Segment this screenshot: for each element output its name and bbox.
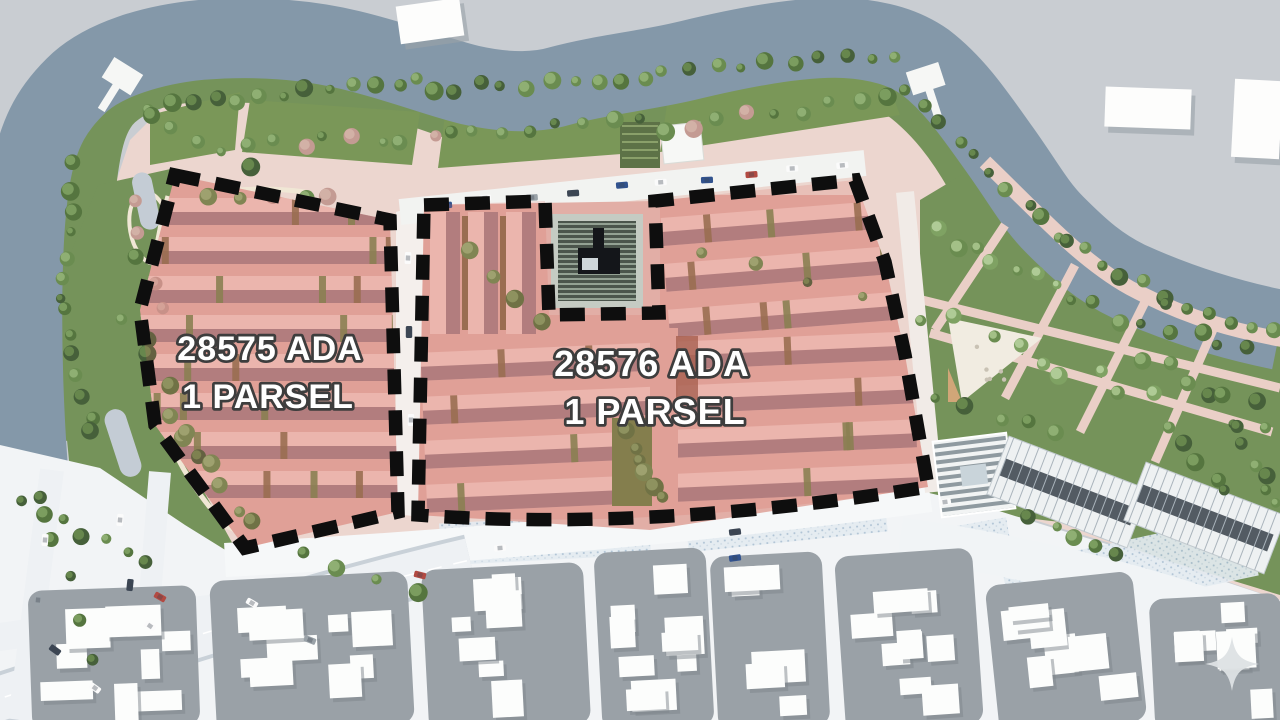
tree bbox=[969, 149, 979, 159]
tree bbox=[984, 168, 994, 178]
city-building bbox=[779, 695, 807, 716]
tree bbox=[811, 50, 824, 63]
tree bbox=[592, 74, 608, 90]
tree bbox=[217, 147, 226, 156]
city-building bbox=[114, 683, 139, 720]
tree bbox=[1047, 424, 1064, 441]
tree bbox=[65, 571, 75, 581]
tree bbox=[989, 330, 1001, 342]
city-building bbox=[491, 679, 524, 717]
tree bbox=[494, 81, 504, 91]
tree bbox=[956, 397, 974, 415]
svg-text:28575 ADA: 28575 ADA bbox=[177, 330, 362, 368]
city-building bbox=[65, 608, 111, 649]
tree bbox=[889, 52, 900, 63]
tree bbox=[371, 574, 381, 584]
tree bbox=[1053, 522, 1062, 531]
svg-text:1 PARSEL: 1 PARSEL bbox=[564, 391, 745, 432]
tree bbox=[1096, 365, 1108, 377]
tree bbox=[1134, 352, 1152, 370]
city-building bbox=[451, 617, 471, 633]
tree bbox=[56, 272, 69, 285]
tree bbox=[854, 92, 872, 110]
car bbox=[116, 514, 123, 527]
car bbox=[567, 190, 579, 197]
tree bbox=[682, 62, 696, 76]
tree bbox=[124, 547, 134, 557]
tree bbox=[394, 79, 407, 92]
tree bbox=[1219, 485, 1230, 496]
tree bbox=[446, 84, 462, 100]
tree bbox=[1037, 357, 1050, 370]
car bbox=[701, 177, 713, 184]
tree bbox=[950, 239, 968, 257]
tree bbox=[59, 514, 69, 524]
tree bbox=[788, 56, 804, 72]
tree bbox=[131, 226, 145, 240]
car bbox=[745, 171, 757, 178]
tree bbox=[411, 72, 423, 84]
tree bbox=[918, 99, 931, 112]
tree bbox=[577, 117, 589, 129]
tree bbox=[73, 614, 86, 627]
city-block bbox=[1149, 593, 1280, 720]
city-building bbox=[40, 680, 93, 701]
tree bbox=[823, 96, 835, 108]
tree bbox=[1240, 340, 1255, 355]
tree bbox=[1014, 338, 1029, 353]
tree bbox=[796, 107, 811, 122]
city-building bbox=[1250, 689, 1273, 719]
tree bbox=[1065, 529, 1082, 546]
tree bbox=[1097, 261, 1107, 271]
tree bbox=[1032, 208, 1049, 225]
tree bbox=[1212, 340, 1223, 351]
city-building bbox=[724, 565, 781, 593]
tree bbox=[1052, 280, 1061, 289]
tree bbox=[241, 157, 260, 176]
car bbox=[654, 179, 666, 186]
tree bbox=[655, 65, 666, 76]
tree bbox=[996, 414, 1009, 427]
city-building bbox=[1099, 672, 1139, 701]
tree bbox=[1181, 303, 1193, 315]
tree bbox=[1050, 367, 1068, 385]
city-block bbox=[421, 562, 591, 720]
car bbox=[126, 579, 134, 592]
city-building bbox=[921, 683, 960, 715]
tree bbox=[66, 227, 75, 236]
tree bbox=[997, 182, 1012, 197]
city-building bbox=[248, 608, 304, 640]
city-building bbox=[328, 614, 349, 632]
tree bbox=[685, 120, 703, 138]
tree bbox=[769, 109, 779, 119]
tree bbox=[868, 54, 878, 64]
svg-text:1 PARSEL: 1 PARSEL bbox=[182, 378, 354, 416]
city-block bbox=[209, 571, 415, 720]
tree bbox=[1235, 437, 1248, 450]
tree bbox=[1247, 322, 1258, 333]
tree bbox=[299, 139, 315, 155]
tree bbox=[1231, 420, 1244, 433]
tree bbox=[712, 58, 726, 72]
car bbox=[34, 594, 41, 607]
tree bbox=[409, 583, 428, 602]
tree bbox=[163, 93, 182, 112]
tree bbox=[229, 94, 245, 110]
dark-roof-building bbox=[551, 214, 643, 308]
tree bbox=[1111, 386, 1125, 400]
tree bbox=[445, 126, 458, 139]
tree bbox=[298, 547, 310, 559]
tree bbox=[1110, 268, 1128, 286]
city-block bbox=[710, 551, 831, 720]
tree bbox=[143, 107, 160, 124]
tree bbox=[1060, 234, 1074, 248]
tree bbox=[613, 73, 629, 89]
tree bbox=[1160, 298, 1172, 310]
tree bbox=[496, 127, 508, 139]
tree bbox=[1180, 375, 1196, 391]
tree bbox=[638, 72, 653, 87]
tree bbox=[343, 128, 359, 144]
car bbox=[616, 181, 629, 188]
tree bbox=[164, 121, 178, 135]
car bbox=[405, 252, 412, 264]
tree bbox=[56, 294, 65, 303]
tree bbox=[1020, 509, 1036, 525]
tree bbox=[139, 555, 153, 569]
tree bbox=[295, 79, 313, 97]
city-building bbox=[328, 663, 362, 698]
tree bbox=[101, 534, 111, 544]
city-building bbox=[1027, 655, 1054, 688]
tree bbox=[709, 111, 724, 126]
city-building bbox=[1174, 631, 1204, 662]
tree bbox=[1013, 265, 1023, 275]
svg-text:28576 ADA: 28576 ADA bbox=[554, 343, 750, 384]
city-building bbox=[141, 649, 160, 679]
tree bbox=[543, 72, 561, 90]
tree bbox=[1136, 319, 1146, 329]
tree bbox=[185, 94, 201, 110]
tree bbox=[267, 134, 280, 147]
city-building bbox=[873, 588, 929, 614]
tree bbox=[379, 138, 388, 147]
tree bbox=[367, 76, 384, 93]
tree bbox=[1258, 467, 1275, 484]
city-building bbox=[661, 631, 698, 652]
tree bbox=[972, 242, 984, 254]
tree bbox=[982, 254, 998, 270]
tree bbox=[606, 111, 624, 129]
site-plan-screenshot: 28575 ADA 1 PARSEL 28576 ADA 1 PARSEL bbox=[0, 0, 1280, 720]
city-block bbox=[834, 547, 984, 720]
city-building bbox=[485, 590, 523, 628]
city-building bbox=[162, 631, 191, 652]
tree bbox=[325, 85, 334, 94]
tree bbox=[74, 389, 90, 405]
tree bbox=[60, 251, 75, 266]
city-building bbox=[626, 688, 666, 712]
tree bbox=[571, 76, 581, 86]
city-building bbox=[105, 605, 161, 638]
tree bbox=[319, 188, 337, 206]
city-building bbox=[459, 637, 496, 662]
tree bbox=[899, 84, 910, 95]
tree bbox=[61, 182, 80, 201]
tree bbox=[1203, 307, 1216, 320]
tree bbox=[346, 77, 360, 91]
tree bbox=[328, 560, 345, 577]
tree bbox=[241, 137, 256, 152]
tree bbox=[1164, 356, 1178, 370]
tree bbox=[63, 345, 79, 361]
tree bbox=[840, 48, 854, 62]
tree bbox=[36, 506, 53, 523]
tree bbox=[915, 315, 926, 326]
tree bbox=[1186, 453, 1204, 471]
car bbox=[41, 534, 48, 546]
city-block bbox=[985, 571, 1148, 720]
tree bbox=[1022, 414, 1036, 428]
tree bbox=[430, 130, 441, 141]
tree bbox=[518, 80, 535, 97]
tree bbox=[931, 220, 947, 236]
city-building bbox=[351, 610, 393, 647]
tree bbox=[1260, 422, 1271, 433]
tree bbox=[1214, 387, 1231, 404]
city-block bbox=[593, 547, 714, 720]
tree bbox=[756, 52, 774, 70]
tree bbox=[1079, 242, 1091, 254]
tree bbox=[280, 92, 289, 101]
tree bbox=[128, 249, 144, 265]
offsite-building bbox=[1231, 79, 1280, 166]
tree bbox=[1109, 547, 1124, 562]
tree bbox=[65, 154, 81, 170]
tree bbox=[34, 491, 47, 504]
city-building bbox=[609, 616, 635, 649]
tree bbox=[251, 88, 267, 104]
tree bbox=[116, 314, 127, 325]
car bbox=[494, 544, 507, 551]
tree bbox=[210, 90, 226, 106]
tree bbox=[635, 114, 645, 124]
tree bbox=[392, 135, 408, 151]
tree bbox=[931, 114, 946, 129]
tree bbox=[930, 393, 939, 402]
tree bbox=[58, 302, 71, 315]
tree bbox=[656, 122, 675, 141]
tree bbox=[81, 422, 99, 440]
tree bbox=[1175, 435, 1192, 452]
tree bbox=[1163, 325, 1178, 340]
tree bbox=[1086, 295, 1100, 309]
tree bbox=[946, 308, 962, 324]
tree bbox=[550, 118, 560, 128]
city-building bbox=[618, 655, 654, 677]
tree bbox=[1137, 274, 1150, 287]
car bbox=[836, 162, 849, 170]
city-building bbox=[746, 662, 786, 689]
city-building bbox=[926, 634, 955, 662]
tree bbox=[68, 368, 82, 382]
tree bbox=[1261, 485, 1272, 496]
tree bbox=[1225, 317, 1238, 330]
tree bbox=[1163, 421, 1175, 433]
tree bbox=[73, 528, 90, 545]
tree bbox=[87, 654, 99, 666]
tree bbox=[1248, 392, 1266, 410]
tree bbox=[1031, 266, 1045, 280]
tree bbox=[1146, 385, 1161, 400]
offsite-building bbox=[1104, 87, 1196, 136]
tree bbox=[425, 82, 444, 101]
city-building bbox=[1068, 633, 1110, 672]
tree bbox=[878, 88, 897, 107]
tree bbox=[16, 495, 27, 506]
tree bbox=[65, 329, 76, 340]
tree bbox=[1026, 200, 1037, 211]
city-building bbox=[653, 564, 688, 595]
tree bbox=[1112, 314, 1130, 332]
tree bbox=[1195, 324, 1213, 342]
site-plan-canvas: 28575 ADA 1 PARSEL 28576 ADA 1 PARSEL bbox=[0, 0, 1280, 720]
tree bbox=[474, 75, 489, 90]
tree bbox=[739, 105, 754, 120]
tree bbox=[524, 126, 536, 138]
tree bbox=[129, 194, 142, 207]
tree bbox=[1089, 539, 1103, 553]
car bbox=[786, 165, 798, 172]
tree bbox=[191, 135, 205, 149]
tree bbox=[956, 136, 968, 148]
tree bbox=[736, 63, 745, 72]
city-building bbox=[249, 660, 293, 687]
car bbox=[406, 326, 412, 338]
city-building bbox=[898, 631, 924, 660]
tree bbox=[65, 203, 82, 220]
tree bbox=[317, 131, 327, 141]
tree bbox=[466, 125, 477, 136]
city-building bbox=[1221, 602, 1246, 623]
tree bbox=[1066, 295, 1076, 305]
